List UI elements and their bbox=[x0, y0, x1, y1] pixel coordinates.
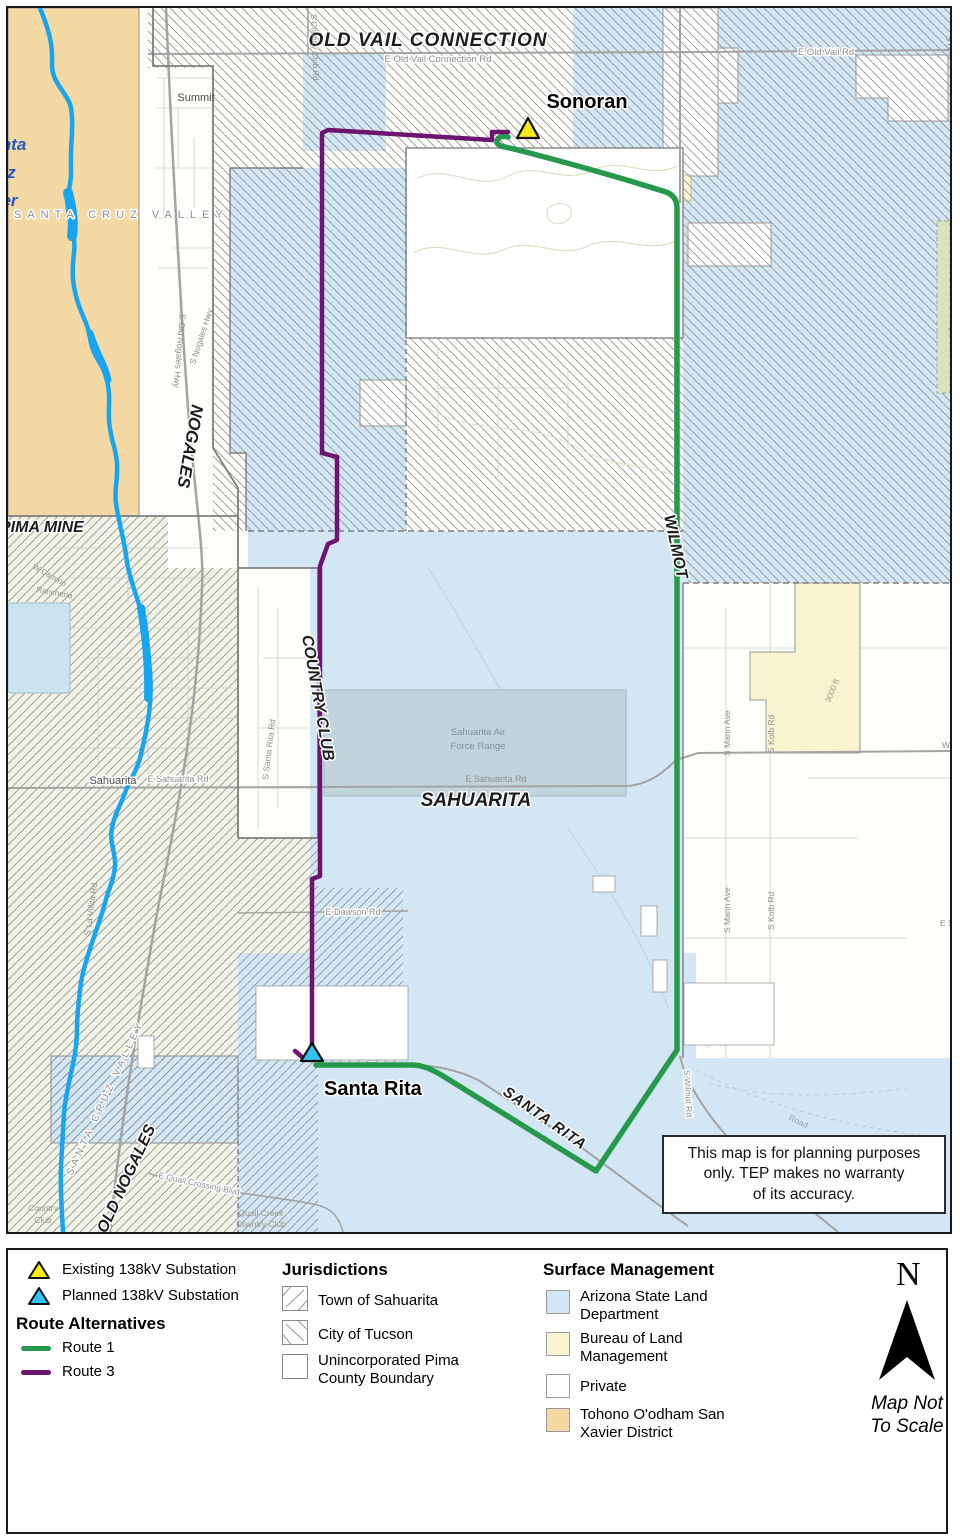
private-label: Private bbox=[580, 1378, 750, 1396]
unincorporated-pima-swatch bbox=[282, 1354, 308, 1379]
mann-ave-label-1: S Mann Ave bbox=[722, 710, 732, 756]
mine-pond bbox=[8, 603, 70, 693]
city-of-tucson-label: City of Tucson bbox=[318, 1326, 483, 1344]
river-label-cruz: Cruz bbox=[8, 163, 16, 182]
country-club-small-label-2: Club bbox=[34, 1215, 52, 1225]
sahuarita-rd-left-label: E Sahuarita Rd bbox=[147, 774, 208, 784]
disclaimer-line-3: of its accuracy. bbox=[668, 1185, 940, 1205]
w-fragment-label: W bbox=[942, 740, 950, 750]
route-alternatives-title: Route Alternatives bbox=[16, 1314, 166, 1334]
route-3-swatch bbox=[21, 1370, 51, 1375]
dawson-rd-label: E Dawson Rd bbox=[325, 907, 380, 917]
map: OLD VAIL CONNECTION E Old Vail Connectio… bbox=[6, 6, 952, 1234]
blm-swatch bbox=[546, 1332, 570, 1356]
route-1-label: Route 1 bbox=[62, 1339, 115, 1357]
unincorporated-pima-label: Unincorporated Pima County Boundary bbox=[318, 1352, 483, 1388]
planned-substation-icon bbox=[27, 1286, 51, 1306]
af-range-label-2: Force Range bbox=[451, 741, 506, 752]
disclaimer-line-2: only. TEP makes no warranty bbox=[668, 1164, 940, 1184]
north-arrow-icon bbox=[875, 1300, 939, 1382]
sonoran-label: Sonoran bbox=[546, 91, 627, 113]
private-swatch bbox=[546, 1374, 570, 1398]
pima-mine-label: PIMA MINE bbox=[8, 519, 85, 536]
river-label-santa: Santa bbox=[8, 135, 26, 154]
north-letter: N bbox=[896, 1256, 921, 1294]
tohono-odham-label: Tohono O'odham San Xavier District bbox=[580, 1406, 750, 1442]
country-club-small-label-1: Country bbox=[28, 1203, 59, 1213]
sahuarita-town-label: Sahuarita bbox=[89, 775, 137, 787]
quail-creek-label-2: Country Club bbox=[236, 1219, 286, 1229]
sahuarita-rd-center-label: E Sahuarita Rd bbox=[465, 774, 526, 784]
existing-substation-label: Existing 138kV Substation bbox=[62, 1261, 236, 1279]
santa-rita-substation-label: Santa Rita bbox=[324, 1078, 423, 1100]
city-of-tucson-swatch bbox=[282, 1320, 308, 1345]
sahuarita-label: SAHUARITA bbox=[421, 790, 531, 811]
old-vail-connection-rd-label: E Old Vail Connection Rd bbox=[384, 54, 491, 65]
old-vail-rd-label: E Old Vail Rd bbox=[798, 47, 854, 58]
route-3-label: Route 3 bbox=[62, 1363, 115, 1381]
legend: Existing 138kV Substation Planned 138kV … bbox=[6, 1248, 948, 1534]
map-canvas: OLD VAIL CONNECTION E Old Vail Connectio… bbox=[8, 8, 950, 1232]
disclaimer-line-1: This map is for planning purposes bbox=[668, 1144, 940, 1164]
summit-label: Summit bbox=[177, 92, 214, 104]
arizona-state-land-label: Arizona State Land Department bbox=[580, 1288, 750, 1324]
arizona-state-land-swatch bbox=[546, 1290, 570, 1314]
santa-cruz-valley-label: SANTA CRUZ VALLEY bbox=[14, 209, 229, 221]
planned-substation-label: Planned 138kV Substation bbox=[62, 1287, 239, 1305]
town-of-sahuarita-label: Town of Sahuarita bbox=[318, 1292, 483, 1310]
old-vail-connection-label: OLD VAIL CONNECTION bbox=[309, 30, 548, 51]
existing-substation-icon bbox=[27, 1260, 51, 1280]
sonoran-section-boundary bbox=[406, 148, 683, 338]
quail-creek-label-1: Quail Creek bbox=[239, 1208, 285, 1218]
blm-label: Bureau of Land Management bbox=[580, 1330, 750, 1366]
map-not-to-scale-line-2: To Scale bbox=[853, 1415, 960, 1438]
mann-ave-label-2: S Mann Ave bbox=[722, 887, 732, 933]
river-label-river: River bbox=[8, 191, 19, 210]
disclaimer-box: This map is for planning purposes only. … bbox=[662, 1135, 946, 1214]
tohono-odham-swatch bbox=[546, 1408, 570, 1432]
kolb-rd-label-1: S Kolb Rd bbox=[766, 714, 776, 753]
af-range-label-1: Sahuarita Air bbox=[451, 727, 505, 738]
route-1-swatch bbox=[21, 1346, 51, 1351]
park-strip bbox=[937, 221, 950, 393]
kolb-rd-label-2: S Kolb Rd bbox=[766, 891, 776, 930]
jurisdictions-title: Jurisdictions bbox=[282, 1260, 388, 1280]
es-fragment-label: E S bbox=[940, 918, 950, 928]
map-not-to-scale-line-1: Map Not bbox=[853, 1392, 960, 1415]
surface-management-title: Surface Management bbox=[543, 1260, 714, 1280]
town-of-sahuarita-swatch bbox=[282, 1286, 308, 1311]
